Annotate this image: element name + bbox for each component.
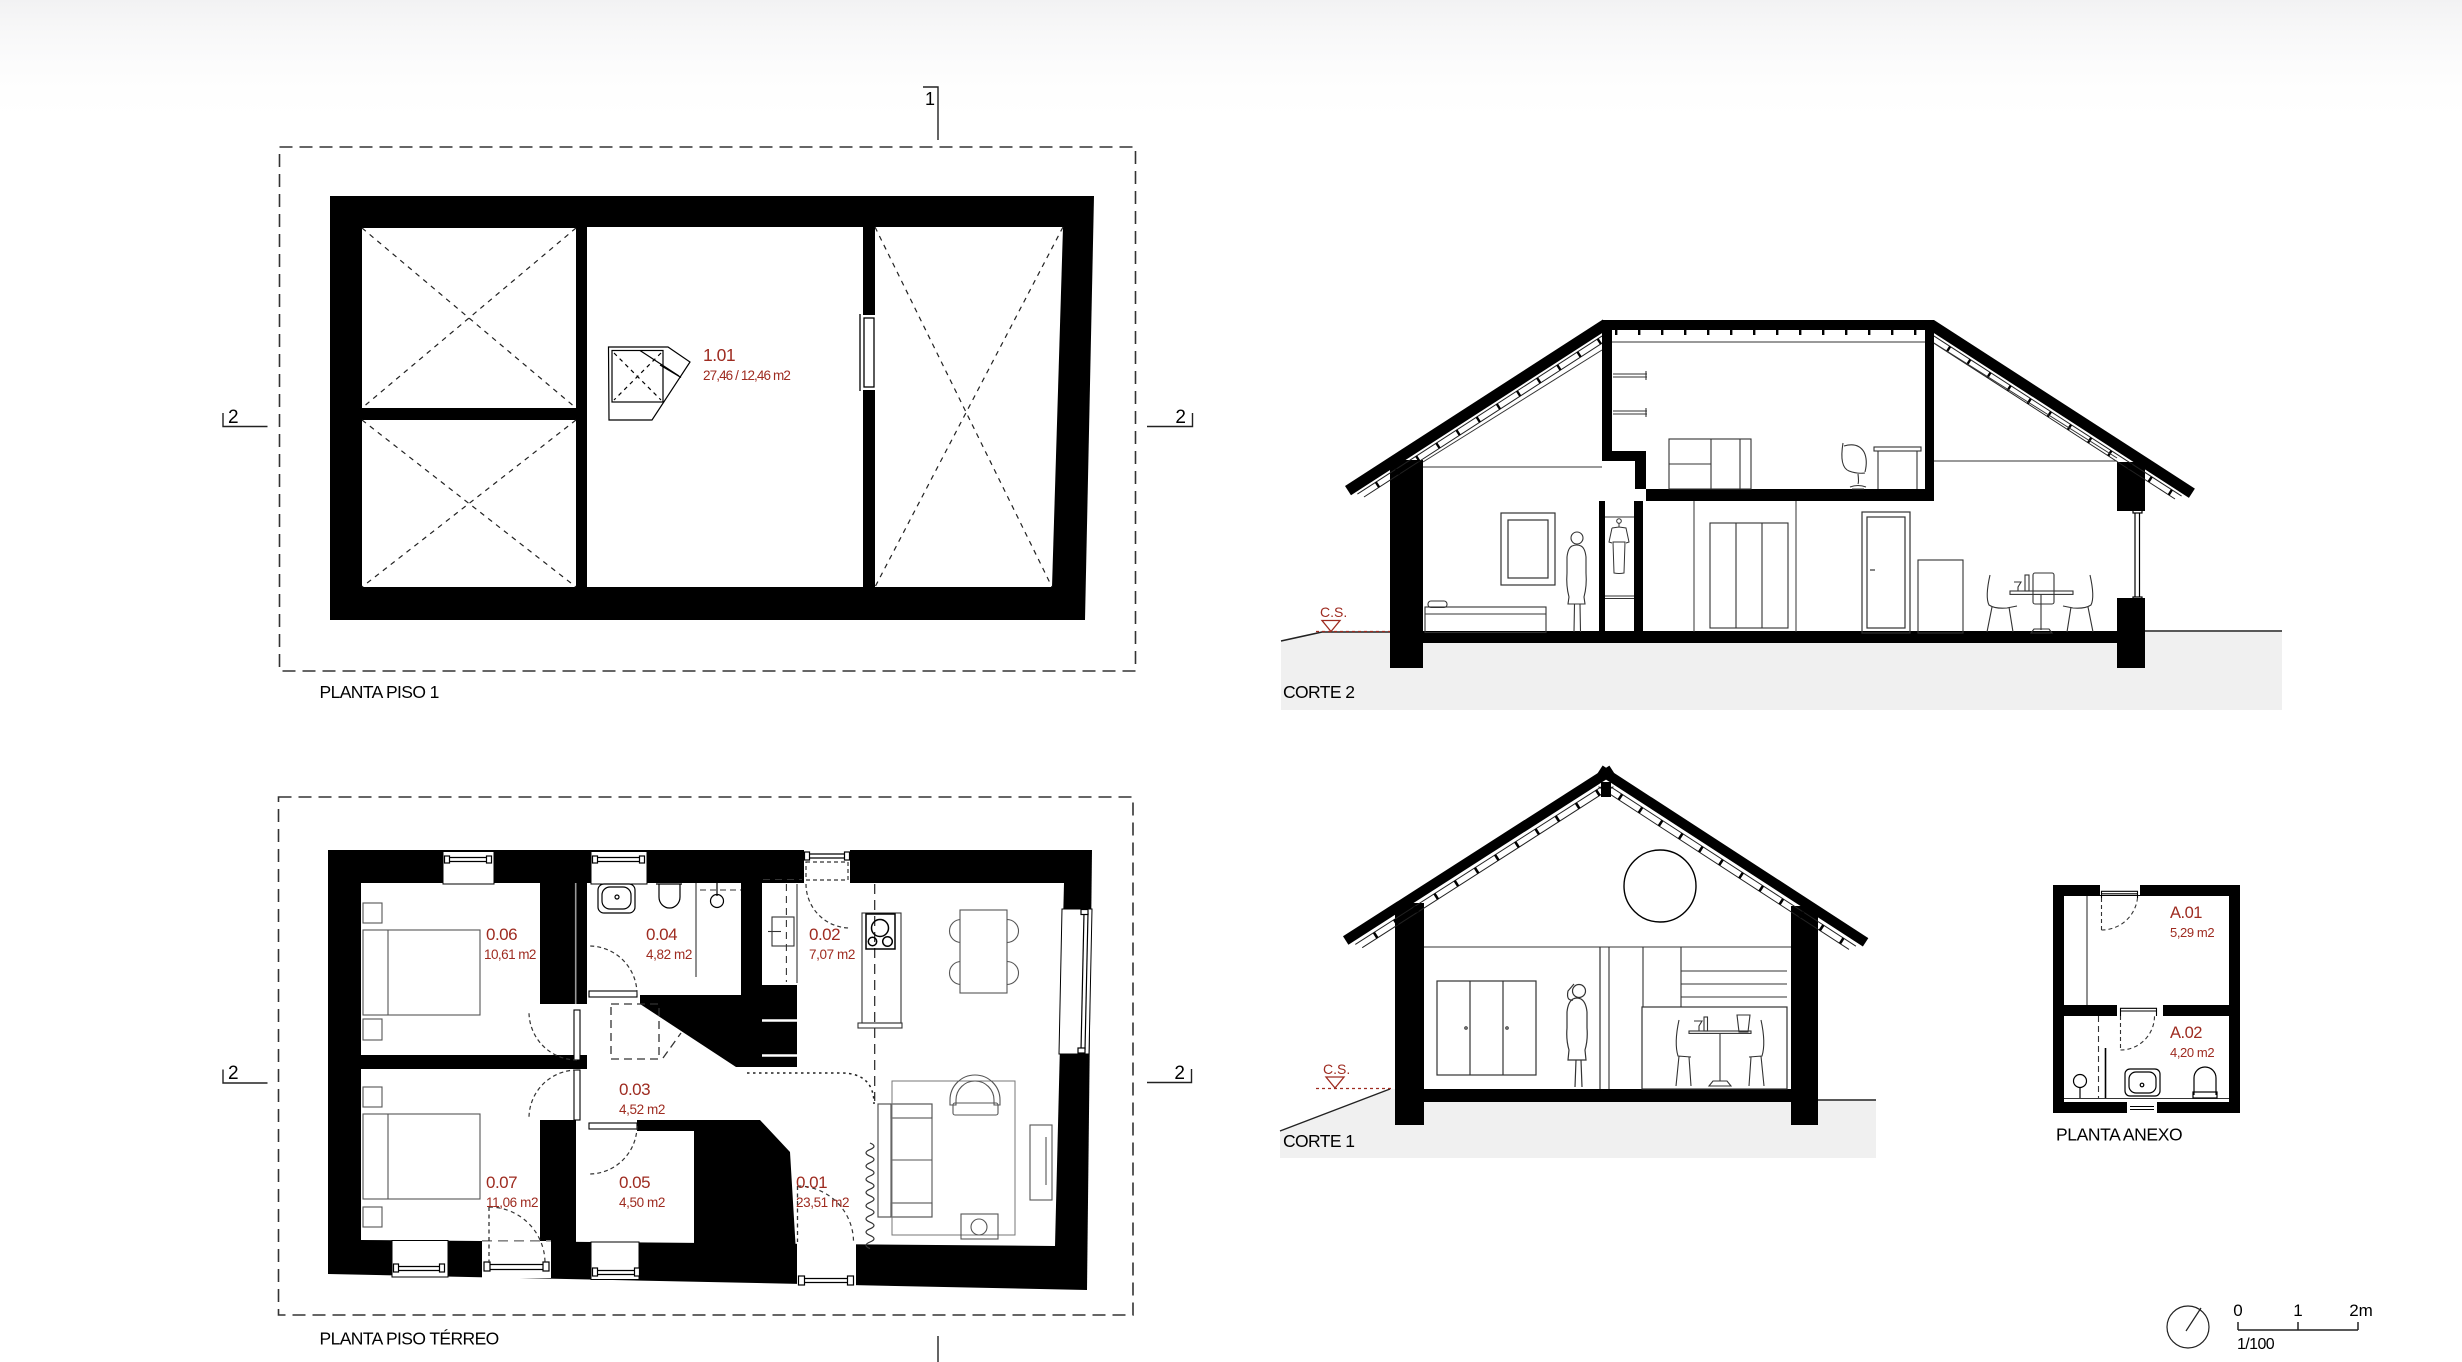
svg-text:C.S.: C.S. [1323,1061,1350,1077]
svg-text:11,06 m2: 11,06 m2 [486,1195,538,1210]
svg-text:0.02: 0.02 [809,925,840,944]
svg-text:0.04: 0.04 [646,925,677,944]
svg-text:CORTE 2: CORTE 2 [1283,682,1354,702]
svg-text:A.02: A.02 [2170,1024,2202,1042]
svg-text:A.01: A.01 [2170,904,2202,922]
svg-text:2: 2 [1174,1063,1185,1084]
svg-text:0.03: 0.03 [619,1080,650,1099]
svg-text:1: 1 [925,89,935,109]
svg-text:0.05: 0.05 [619,1173,650,1192]
svg-text:10,61 m2: 10,61 m2 [484,947,536,962]
svg-text:PLANTA PISO 1: PLANTA PISO 1 [320,682,439,702]
svg-text:PLANTA ANEXO: PLANTA ANEXO [2056,1125,2182,1145]
svg-text:1.01: 1.01 [703,345,735,365]
svg-text:5,29 m2: 5,29 m2 [2170,925,2214,940]
svg-text:4,50 m2: 4,50 m2 [619,1195,665,1210]
svg-text:0.01: 0.01 [796,1173,827,1192]
svg-text:2m: 2m [2349,1301,2373,1320]
svg-text:2: 2 [1175,407,1186,428]
svg-text:2: 2 [228,407,239,428]
svg-text:CORTE 1: CORTE 1 [1283,1131,1354,1151]
svg-text:0.06: 0.06 [486,925,517,944]
svg-text:23,51 m2: 23,51 m2 [796,1195,849,1210]
svg-text:0: 0 [2233,1301,2242,1320]
svg-text:0.07: 0.07 [486,1173,517,1192]
svg-text:27,46 / 12,46 m2: 27,46 / 12,46 m2 [703,368,790,383]
svg-text:4,82 m2: 4,82 m2 [646,947,692,962]
svg-text:4,20 m2: 4,20 m2 [2170,1045,2214,1060]
svg-text:PLANTA PISO TÉRREO: PLANTA PISO TÉRREO [320,1329,499,1349]
svg-text:1: 1 [2293,1301,2302,1320]
svg-text:7,07 m2: 7,07 m2 [809,947,855,962]
svg-text:1/100: 1/100 [2237,1336,2275,1353]
svg-text:2: 2 [228,1063,239,1084]
svg-text:C.S.: C.S. [1320,604,1347,620]
svg-text:4,52 m2: 4,52 m2 [619,1102,665,1117]
